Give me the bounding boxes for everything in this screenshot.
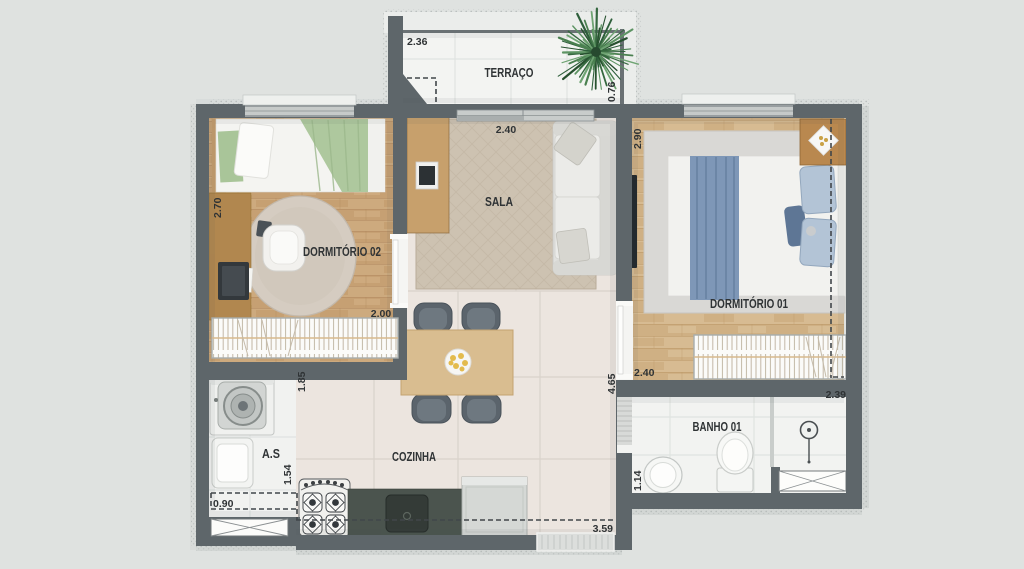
svg-text:DORMITÓRIO 02: DORMITÓRIO 02 <box>303 244 381 259</box>
svg-text:2.36: 2.36 <box>407 36 428 48</box>
svg-text:0.90: 0.90 <box>213 498 234 510</box>
svg-text:COZINHA: COZINHA <box>392 450 436 464</box>
svg-text:TERRAÇO: TERRAÇO <box>485 66 534 80</box>
svg-text:1.14: 1.14 <box>632 470 644 491</box>
svg-text:DORMITÓRIO 01: DORMITÓRIO 01 <box>710 296 788 311</box>
svg-text:0.76: 0.76 <box>606 81 618 102</box>
svg-text:2.90: 2.90 <box>632 128 644 149</box>
svg-text:2.00: 2.00 <box>371 308 392 320</box>
svg-text:3.59: 3.59 <box>593 523 614 535</box>
svg-text:1.54: 1.54 <box>282 464 294 485</box>
svg-text:2.40: 2.40 <box>634 367 655 379</box>
svg-text:2.39: 2.39 <box>826 389 847 401</box>
svg-text:2.40: 2.40 <box>496 124 517 136</box>
svg-text:A.S: A.S <box>262 447 280 461</box>
svg-text:1.85: 1.85 <box>296 371 308 392</box>
svg-text:SALA: SALA <box>485 195 513 209</box>
svg-text:BANHO 01: BANHO 01 <box>693 420 742 434</box>
svg-text:2.70: 2.70 <box>212 197 224 218</box>
svg-text:4.65: 4.65 <box>606 373 618 394</box>
